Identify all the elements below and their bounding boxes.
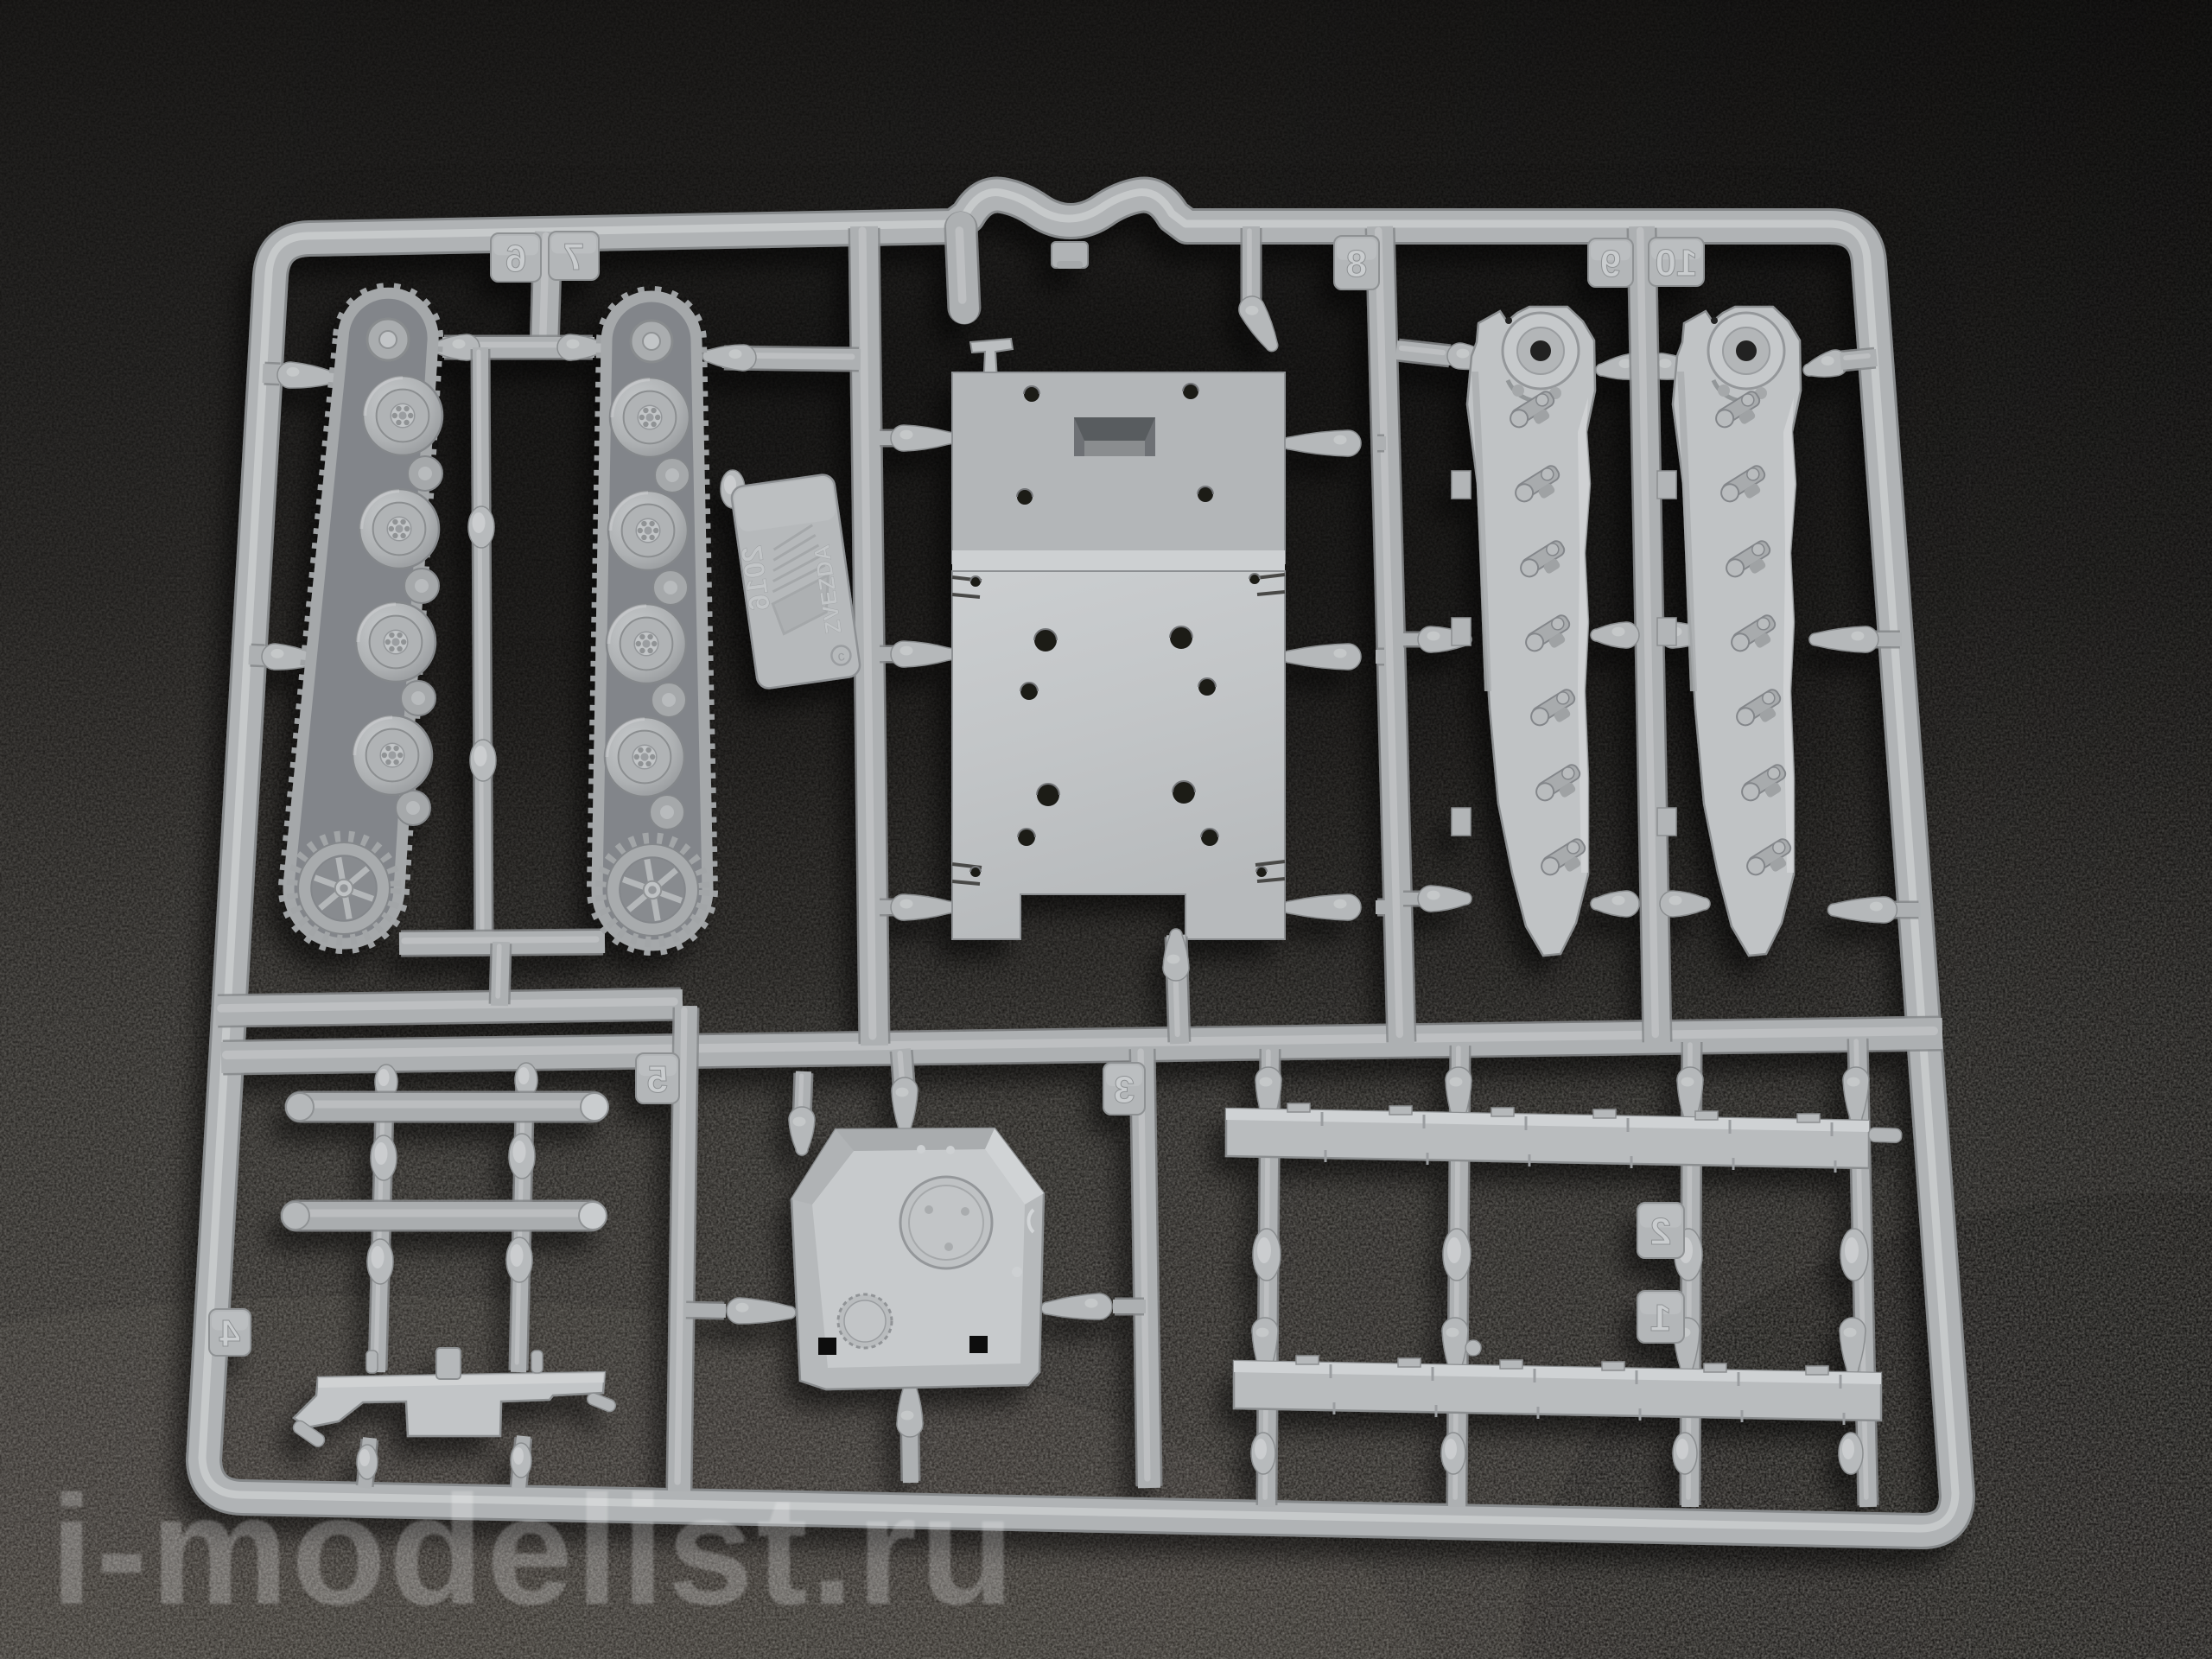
svg-text:10: 10 [1656,242,1698,284]
svg-text:i-modelist.ru: i-modelist.ru [50,1464,1017,1637]
svg-text:4: 4 [219,1313,240,1355]
svg-text:2: 2 [1650,1211,1671,1253]
svg-text:7: 7 [563,236,584,278]
svg-text:5: 5 [647,1058,668,1101]
svg-text:1: 1 [1650,1297,1671,1339]
svg-text:6: 6 [505,238,526,280]
svg-text:9: 9 [1600,243,1621,285]
svg-text:3: 3 [1114,1069,1135,1111]
svg-text:8: 8 [1346,243,1367,285]
